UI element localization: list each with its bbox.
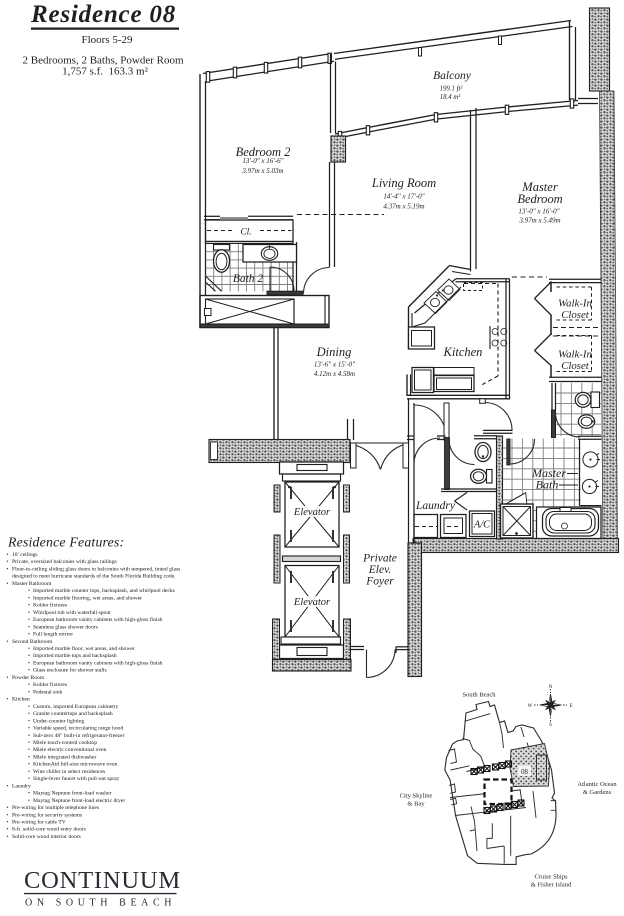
svg-text:•: •	[28, 624, 30, 630]
svg-text:Pedestal sink: Pedestal sink	[33, 689, 63, 695]
svg-text:•: •	[28, 733, 30, 739]
svg-text:•: •	[28, 762, 30, 768]
svg-text:European bathroom vanity cabin: European bathroom vanity cabinets with h…	[33, 616, 163, 623]
svg-text:•: •	[7, 675, 9, 681]
svg-text:Cl.: Cl.	[240, 228, 251, 238]
svg-text:•: •	[7, 834, 9, 840]
svg-text:•: •	[7, 805, 9, 811]
svg-text:Kohler fixtures: Kohler fixtures	[33, 681, 67, 688]
svg-text:13′-0″ x 16′-6″: 13′-0″ x 16′-6″	[242, 157, 283, 165]
svg-text:& Fisher Island: & Fisher Island	[531, 882, 572, 889]
svg-text:•: •	[28, 711, 30, 717]
svg-text:Laundry: Laundry	[12, 783, 31, 789]
svg-text:•: •	[7, 559, 9, 565]
svg-text:N: N	[549, 685, 553, 690]
svg-text:CONTINUUM: CONTINUUM	[24, 867, 181, 894]
svg-text:E: E	[569, 704, 572, 709]
svg-text:•: •	[7, 820, 9, 826]
svg-text:4.37m x 5.19m: 4.37m x 5.19m	[383, 203, 424, 211]
svg-text:Kitchen: Kitchen	[12, 697, 30, 703]
svg-text:199.1 ft²: 199.1 ft²	[440, 86, 464, 93]
svg-text:Elevator: Elevator	[293, 597, 331, 608]
svg-text:18.4 m²: 18.4 m²	[440, 94, 462, 101]
svg-text:•: •	[28, 603, 30, 609]
svg-text:Custom, imported European cabi: Custom, imported European cabinetry	[33, 704, 119, 710]
svg-text:10′ ceilings: 10′ ceilings	[12, 552, 38, 558]
svg-text:Miele touch-control cooktop: Miele touch-control cooktop	[33, 740, 97, 746]
svg-text:Glass enclosure for shower sta: Glass enclosure for shower stalls	[33, 667, 107, 674]
svg-text:•: •	[7, 552, 9, 558]
svg-text:•: •	[28, 769, 30, 775]
svg-text:•: •	[28, 747, 30, 753]
svg-text:Kohler fixtures: Kohler fixtures	[33, 602, 67, 609]
svg-text:Imported marble counter tops,: Imported marble counter tops, backsplash…	[33, 588, 175, 594]
svg-text:•: •	[28, 661, 30, 667]
svg-text:S: S	[549, 723, 552, 728]
svg-text:14′-4″ x 17′-0″: 14′-4″ x 17′-0″	[383, 193, 424, 201]
svg-text:Foyer: Foyer	[365, 576, 394, 588]
svg-text:Wine chiller in select residen: Wine chiller in select residences	[33, 769, 105, 775]
svg-text:•: •	[28, 776, 30, 782]
svg-text:Laundry: Laundry	[415, 500, 456, 512]
svg-text:13′-6″ x 15′-0″: 13′-6″ x 15′-0″	[314, 361, 355, 369]
svg-text:Maytag Neptune front-load wash: Maytag Neptune front-load washer	[33, 790, 112, 797]
svg-text:Powder Room: Powder Room	[12, 675, 45, 681]
svg-text:•: •	[7, 581, 9, 587]
svg-text:Imported marble floor, wet are: Imported marble floor, wet areas, and sh…	[33, 645, 135, 652]
svg-text:•: •	[28, 653, 30, 659]
svg-text:& Gardens: & Gardens	[583, 789, 612, 796]
svg-text:Single-lever faucet with pull-: Single-lever faucet with pull-out spray	[33, 775, 120, 782]
svg-text:Pre-wiring for multiple teleph: Pre-wiring for multiple telephone lines	[12, 804, 99, 811]
svg-text:Variable speed, recirculating: Variable speed, recirculating range hood	[33, 726, 123, 732]
svg-text:•: •	[28, 610, 30, 616]
svg-text:Master Bathroom: Master Bathroom	[12, 581, 52, 587]
svg-text:Miele electric conventional ov: Miele electric conventional oven	[33, 747, 107, 753]
svg-text:•: •	[28, 632, 30, 638]
svg-text:•: •	[28, 726, 30, 732]
svg-text:Private, oversized balconies w: Private, oversized balconies with glass …	[12, 559, 117, 565]
svg-text:Bedroom: Bedroom	[517, 192, 562, 206]
svg-text:Whirlpool tub with waterfall s: Whirlpool tub with waterfall spout	[33, 609, 111, 616]
svg-text:08: 08	[521, 769, 528, 776]
svg-text:ON SOUTH BEACH: ON SOUTH BEACH	[25, 898, 176, 909]
svg-text:•: •	[28, 617, 30, 623]
svg-text:•: •	[28, 668, 30, 674]
svg-text:Pre-wiring for cable TV: Pre-wiring for cable TV	[12, 819, 66, 826]
svg-text:•: •	[28, 754, 30, 760]
svg-text:City Skyline: City Skyline	[400, 793, 433, 800]
svg-text:•: •	[28, 798, 30, 804]
svg-text:South Beach: South Beach	[462, 692, 496, 699]
svg-text:Closet: Closet	[561, 309, 590, 321]
svg-text:•: •	[28, 718, 30, 724]
svg-text:Dining: Dining	[316, 345, 352, 359]
svg-text:Kitchen: Kitchen	[443, 345, 483, 359]
svg-text:•: •	[7, 639, 9, 645]
svg-text:3.97m x 5.03m: 3.97m x 5.03m	[241, 167, 283, 175]
svg-text:•: •	[28, 791, 30, 797]
svg-text:Cruise Ships: Cruise Ships	[534, 874, 568, 881]
svg-text:•: •	[7, 812, 9, 818]
svg-text:13′-0″ x 16′-0″: 13′-0″ x 16′-0″	[518, 208, 559, 216]
svg-text:Living Room: Living Room	[371, 176, 436, 190]
svg-text:Imported marble flooring, wet: Imported marble flooring, wet areas, and…	[33, 594, 142, 601]
svg-text:Floors 5-29: Floors 5-29	[81, 34, 133, 46]
svg-text:Seamless glass shower doors: Seamless glass shower doors	[33, 624, 98, 630]
svg-text:Elevator: Elevator	[293, 507, 331, 518]
svg-text:•: •	[7, 783, 9, 789]
svg-text:•: •	[28, 682, 30, 688]
svg-text:Second Bathroom: Second Bathroom	[12, 639, 53, 645]
svg-text:8-ft. solid-core wood entry do: 8-ft. solid-core wood entry doors	[12, 826, 86, 833]
svg-text:Walk-In: Walk-In	[558, 349, 592, 361]
svg-text:Sub-zero 48″ built-in refriger: Sub-zero 48″ built-in refrigerator-freez…	[33, 732, 125, 739]
svg-text:•: •	[28, 646, 30, 652]
svg-text:•: •	[28, 588, 30, 594]
svg-text:Under-counter lighting: Under-counter lighting	[33, 718, 85, 724]
svg-text:& Bay: & Bay	[407, 801, 425, 808]
svg-text:Private: Private	[362, 553, 397, 565]
svg-text:KitchenAid full-size microwave: KitchenAid full-size microwave oven	[33, 761, 118, 768]
svg-text:3.97m x 5.49m: 3.97m x 5.49m	[518, 217, 560, 225]
svg-text:4.12m x 4.58m: 4.12m x 4.58m	[314, 370, 355, 378]
svg-text:A/C: A/C	[473, 520, 491, 531]
svg-text:Residence 08: Residence 08	[30, 1, 176, 28]
svg-text:Residence Features:: Residence Features:	[7, 535, 124, 550]
svg-text:•: •	[28, 595, 30, 601]
svg-text:Miele integrated dishwasher: Miele integrated dishwasher	[33, 754, 97, 760]
svg-text:Closet: Closet	[561, 360, 590, 372]
svg-text:designed to meet hurricane sta: designed to meet hurricane standards of …	[12, 573, 176, 580]
svg-text:Balcony: Balcony	[433, 70, 472, 82]
svg-text:Pre-wiring for security system: Pre-wiring for security systems	[12, 811, 82, 818]
svg-text:•: •	[28, 704, 30, 710]
svg-text:Walk-In: Walk-In	[558, 298, 592, 310]
svg-text:Granite countertops and backsp: Granite countertops and backsplash	[33, 711, 113, 717]
svg-text:Floor-to-ceiling sliding glass: Floor-to-ceiling sliding glass doors to …	[12, 567, 180, 573]
svg-text:Bath: Bath	[536, 478, 559, 492]
svg-text:•: •	[28, 740, 30, 746]
svg-text:Full length mirror: Full length mirror	[33, 632, 73, 638]
svg-text:Bath 2: Bath 2	[233, 273, 264, 285]
svg-text:Elev.: Elev.	[368, 564, 391, 576]
svg-text:Imported marble tops and backs: Imported marble tops and backsplash	[33, 653, 117, 659]
svg-text:1,757 s.f. 163.3 m²: 1,757 s.f. 163.3 m²	[62, 66, 149, 78]
svg-text:•: •	[7, 827, 9, 833]
svg-text:Solid-core wood interior doors: Solid-core wood interior doors	[12, 834, 81, 840]
svg-text:•: •	[7, 567, 9, 573]
svg-text:•: •	[28, 689, 30, 695]
svg-text:European bathroom vanity cabin: European bathroom vanity cabinets with h…	[33, 660, 163, 667]
svg-text:Maytag Neptune front-load elec: Maytag Neptune front-load electric dryer	[33, 797, 125, 804]
svg-text:•: •	[7, 697, 9, 703]
svg-text:Atlantic Ocean: Atlantic Ocean	[577, 781, 617, 788]
svg-text:W: W	[528, 704, 533, 709]
